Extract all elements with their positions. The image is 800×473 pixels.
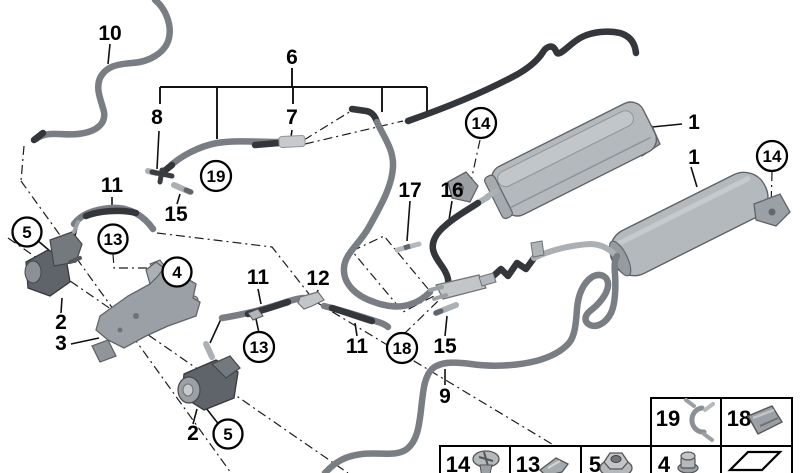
label-11b: 11	[247, 266, 270, 289]
valve2-top-connector	[206, 344, 212, 357]
svg-text:14: 14	[472, 114, 491, 133]
label-17: 17	[398, 179, 421, 202]
label-11a: 11	[101, 174, 124, 197]
label-6: 6	[286, 46, 298, 69]
hose-to-reservoir2	[490, 258, 534, 279]
legend-num-19: 19	[656, 406, 680, 431]
svg-text:5: 5	[22, 223, 31, 242]
svg-text:5: 5	[223, 425, 232, 444]
legend-num-4: 4	[658, 452, 671, 473]
y-connector-12	[298, 292, 324, 309]
label-2a: 2	[55, 311, 67, 334]
t-fitting	[531, 241, 544, 257]
plug-icon	[678, 452, 698, 473]
label-8: 8	[151, 106, 163, 129]
svg-text:13: 13	[104, 230, 123, 249]
diagram-canvas: 10 6 8 7 11 15 17 16 1 1 11 12 2 3 11 15…	[0, 0, 800, 473]
callout-14b: 14	[757, 141, 787, 171]
label-15a: 15	[164, 203, 188, 226]
callout-13a: 13	[99, 225, 128, 254]
legend-num-13: 13	[516, 452, 540, 473]
label-1b: 1	[688, 146, 700, 169]
svg-text:13: 13	[250, 338, 269, 357]
callout-18: 18	[387, 333, 417, 363]
legend-num-14: 14	[446, 452, 471, 473]
label-2b: 2	[187, 422, 199, 445]
connector-7	[279, 135, 306, 147]
hose-center-elbow	[352, 109, 377, 122]
callout-19: 19	[201, 161, 231, 191]
label-9: 9	[439, 385, 451, 408]
svg-text:14: 14	[763, 147, 782, 166]
svg-text:18: 18	[393, 339, 412, 358]
changeover-valve-2	[178, 356, 240, 410]
callout-5b: 5	[214, 420, 243, 449]
label-7: 7	[286, 106, 298, 129]
label-10: 10	[98, 22, 121, 45]
svg-text:4: 4	[172, 263, 182, 282]
hose-6-right	[408, 32, 636, 121]
hose-center	[344, 122, 430, 306]
label-15b: 15	[433, 335, 457, 358]
label-16: 16	[440, 179, 463, 202]
legend: 19 18 14 13 5 4	[440, 398, 792, 473]
parts-diagram: 10 6 8 7 11 15 17 16 1 1 11 12 2 3 11 15…	[0, 0, 800, 473]
hose-10	[36, 0, 170, 139]
label-11c: 11	[346, 335, 369, 358]
svg-text:19: 19	[207, 167, 226, 186]
label-3: 3	[55, 332, 67, 355]
label-12: 12	[306, 267, 329, 290]
legend-num-18: 18	[727, 406, 751, 431]
callout-4: 4	[163, 258, 192, 287]
legend-num-5: 5	[589, 452, 601, 473]
callout-14a: 14	[466, 108, 496, 138]
callout-5a: 5	[13, 218, 42, 247]
label-1a: 1	[688, 111, 700, 134]
part-labels: 10 6 8 7 11 15 17 16 1 1 11 12 2 3 11 15…	[55, 22, 700, 445]
callout-13b: 13	[244, 332, 274, 362]
